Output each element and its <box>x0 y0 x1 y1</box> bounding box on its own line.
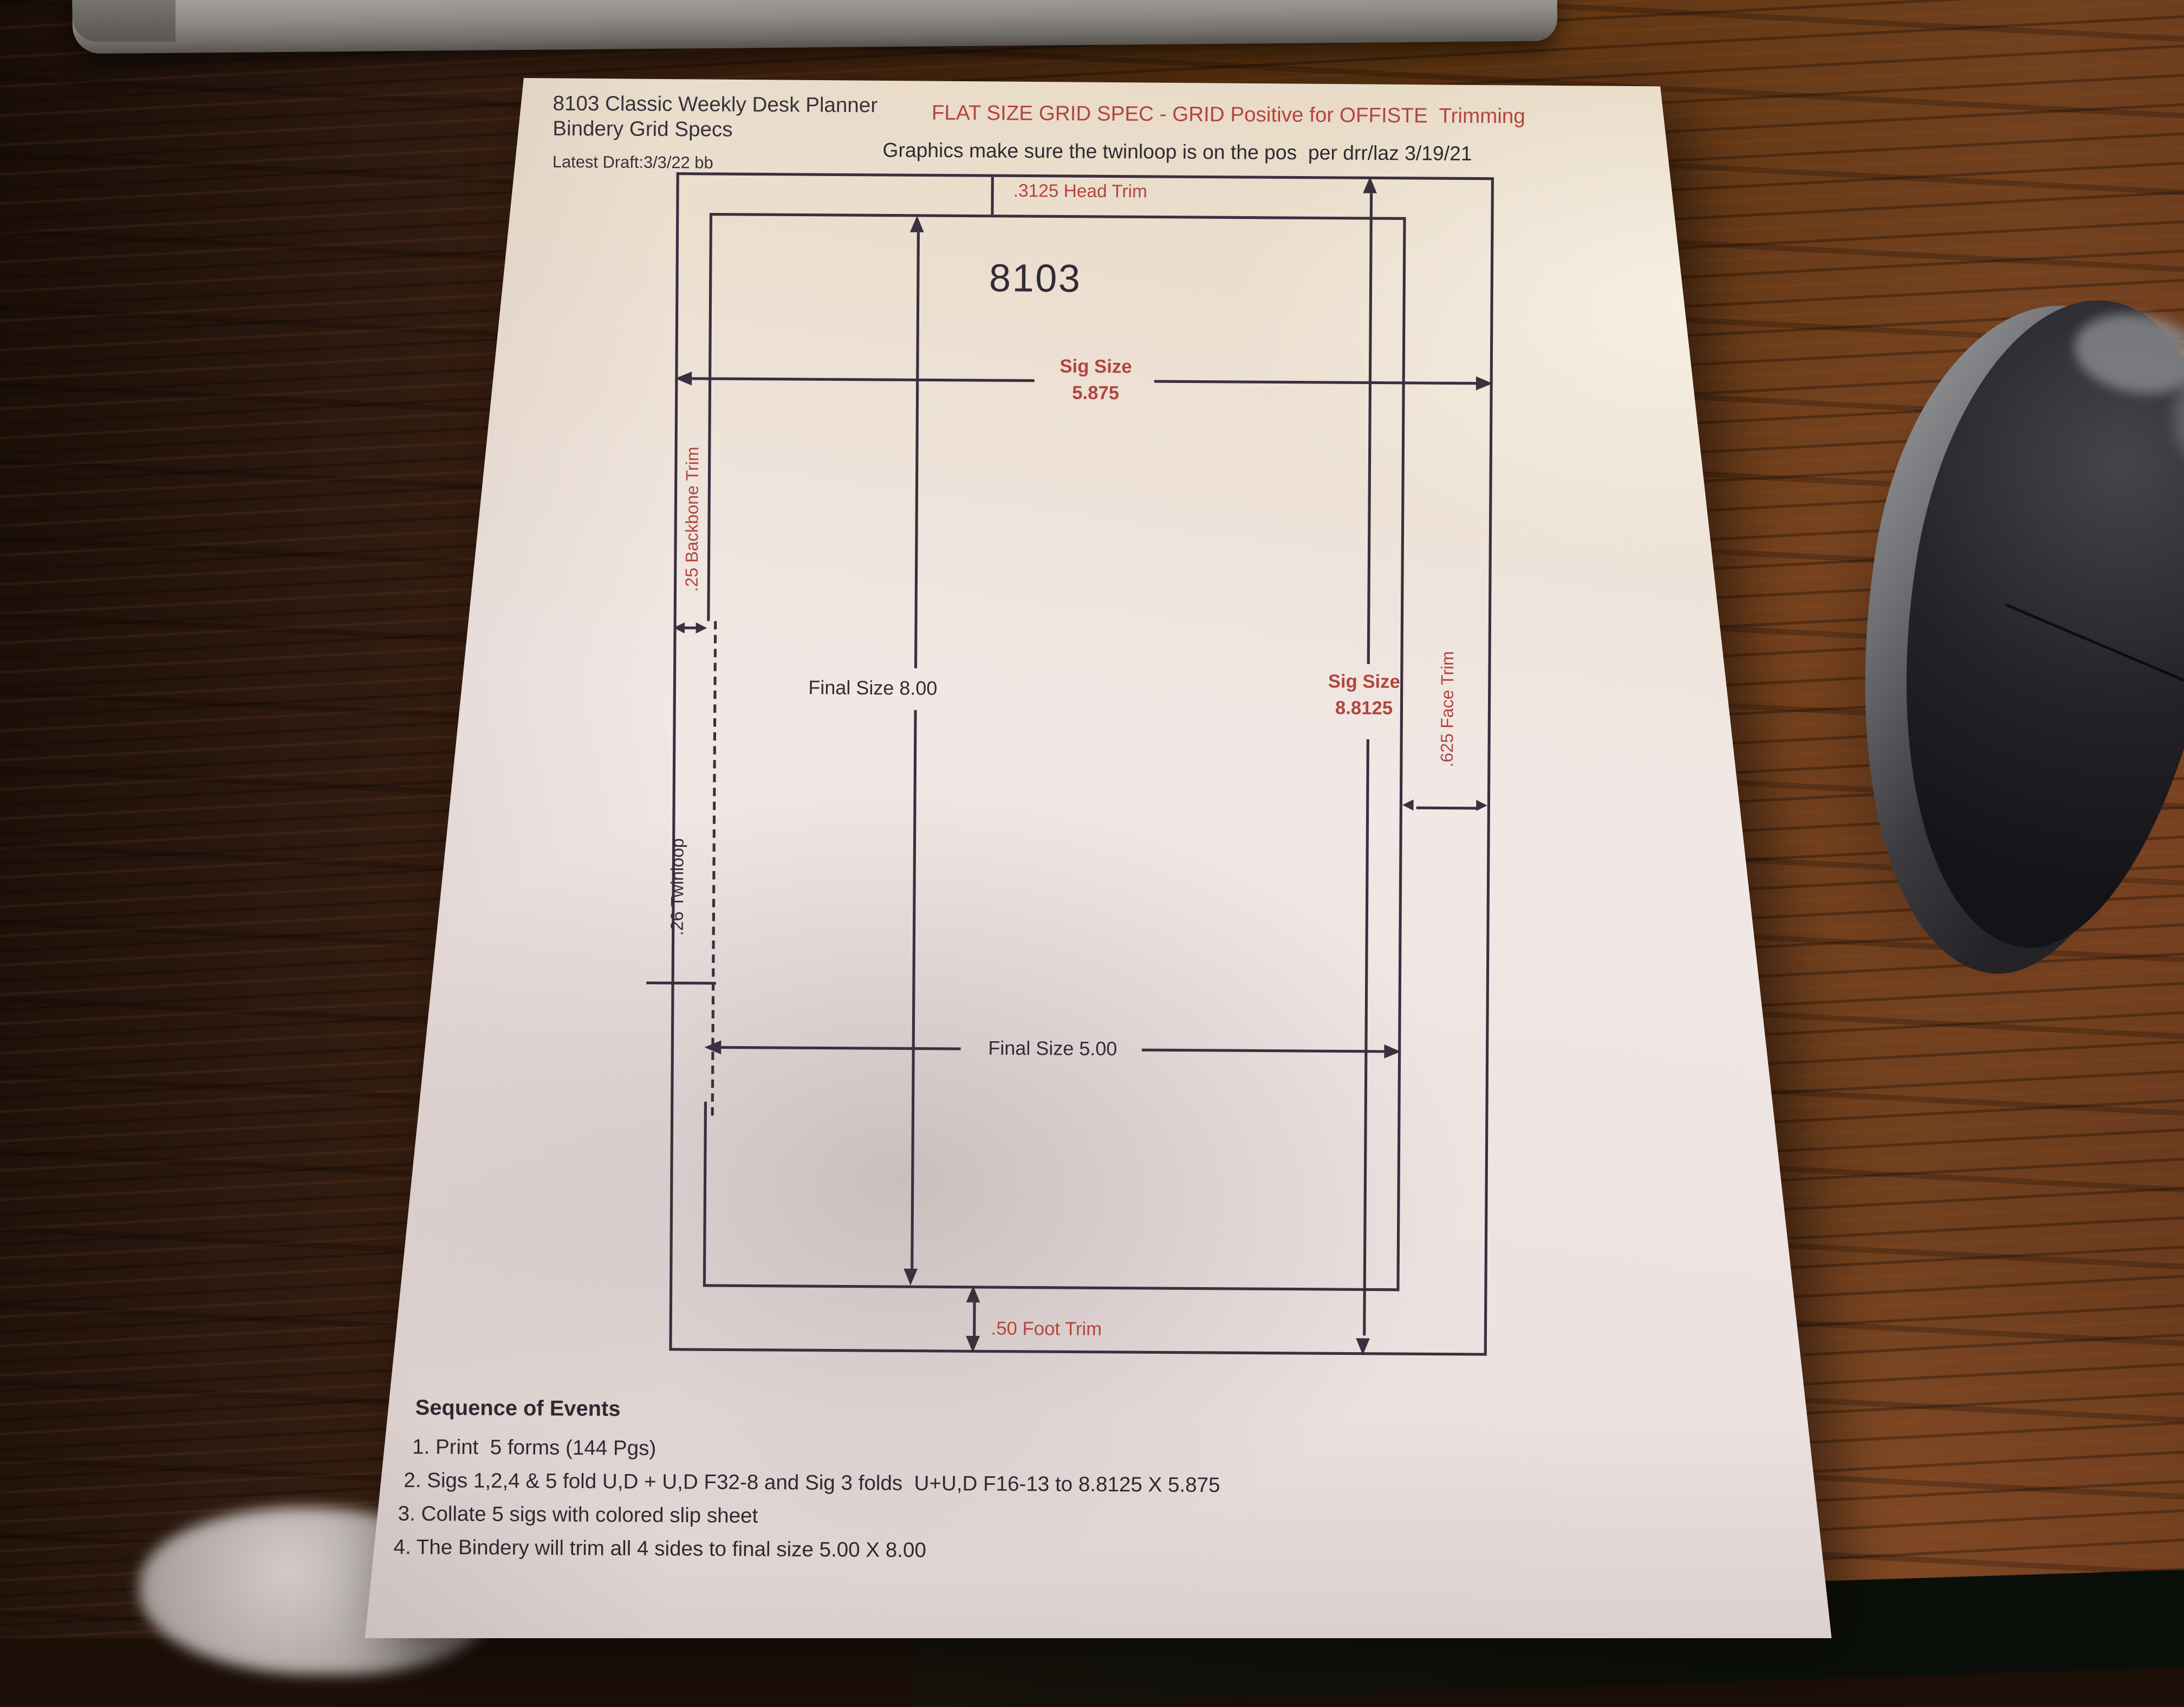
arrowhead-right-icon <box>1476 377 1493 391</box>
arrowhead-left-icon <box>673 622 685 634</box>
title-line1: 8103 Classic Weekly Desk Planner <box>552 92 877 118</box>
flat-size-grid-spec-note: FLAT SIZE GRID SPEC - GRID Positive for … <box>932 101 1572 129</box>
sig-width-value: 5.875 <box>1072 382 1119 404</box>
face-trim-dim-line <box>1416 807 1477 810</box>
head-trim-divider <box>991 177 994 215</box>
twinloop-tick-mark <box>646 982 716 985</box>
final-width-label: Final Size 5.00 <box>964 1036 1142 1060</box>
arrowhead-right-icon <box>1384 1044 1401 1059</box>
head-trim-label: .3125 Head Trim <box>1013 180 1147 202</box>
arrowhead-right-icon <box>1476 800 1487 811</box>
sig-height-label: Sig Size8.8125 <box>1308 668 1420 722</box>
arrowhead-left-icon <box>675 372 692 386</box>
face-trim-label: .625 Face Trim <box>1438 651 1458 768</box>
arrowhead-down-icon <box>1356 1338 1370 1355</box>
sig-height-value: 8.8125 <box>1335 697 1393 718</box>
backbone-trim-label: .25 Backbone Trim <box>682 446 703 592</box>
twinloop-label: .26 Twinloop <box>667 838 687 936</box>
arrowhead-up-icon <box>1363 177 1377 193</box>
product-number: 8103 <box>989 256 1082 301</box>
latest-draft-note: Latest Draft:3/3/22 bb <box>552 152 713 173</box>
sig-height-text: Sig Size <box>1328 671 1400 692</box>
arrowhead-up-icon <box>910 216 924 232</box>
foot-trim-label: .50 Foot Trim <box>991 1318 1102 1340</box>
printed-page-content: 8103 Classic Weekly Desk PlannerBindery … <box>0 0 2184 1648</box>
title-line2: Bindery Grid Specs <box>552 117 733 142</box>
arrowhead-down-icon <box>966 1336 980 1353</box>
arrowhead-left-icon <box>1402 800 1414 811</box>
arrowhead-left-icon <box>704 1040 721 1054</box>
graphics-note: Graphics make sure the twinloop is on th… <box>882 140 1472 166</box>
document-title: 8103 Classic Weekly Desk PlannerBindery … <box>552 92 915 145</box>
sequence-heading: Sequence of Events <box>415 1397 621 1423</box>
sequence-item: 1. Print 5 forms (144 Pgs) <box>412 1436 656 1461</box>
sig-width-text: Sig Size <box>1059 356 1132 377</box>
sig-width-label: Sig Size5.875 <box>1034 353 1157 406</box>
photo-scene: 8103 Classic Weekly Desk PlannerBindery … <box>0 0 2184 1638</box>
foot-trim-dim-line <box>973 1302 976 1336</box>
final-height-label: Final Size 8.00 <box>808 676 976 699</box>
sequence-item: 4. The Bindery will trim all 4 sides to … <box>393 1536 926 1563</box>
arrowhead-right-icon <box>696 622 707 634</box>
backbone-trim-dim-line <box>685 626 696 629</box>
arrowhead-up-icon <box>966 1286 980 1302</box>
sequence-item: 3. Collate 5 sigs with colored slip shee… <box>398 1502 758 1528</box>
sequence-item: 2. Sigs 1,2,4 & 5 fold U,D + U,D F32-8 a… <box>404 1469 1220 1498</box>
arrowhead-down-icon <box>903 1269 918 1286</box>
